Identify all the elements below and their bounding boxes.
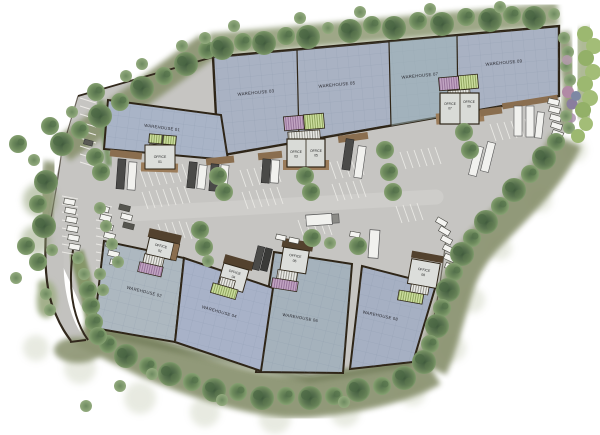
svg-text:01: 01 [158,160,162,164]
svg-text:OFFICE: OFFICE [444,102,456,106]
svg-text:09: 09 [467,105,471,109]
svg-text:OFFICE: OFFICE [154,155,167,159]
svg-text:06: 06 [292,259,296,264]
svg-text:OFFICE: OFFICE [463,100,475,104]
svg-text:07: 07 [448,107,452,111]
svg-text:03: 03 [294,155,298,159]
svg-text:05: 05 [314,154,318,158]
svg-text:OFFICE: OFFICE [310,149,322,153]
svg-text:OFFICE: OFFICE [290,150,302,154]
